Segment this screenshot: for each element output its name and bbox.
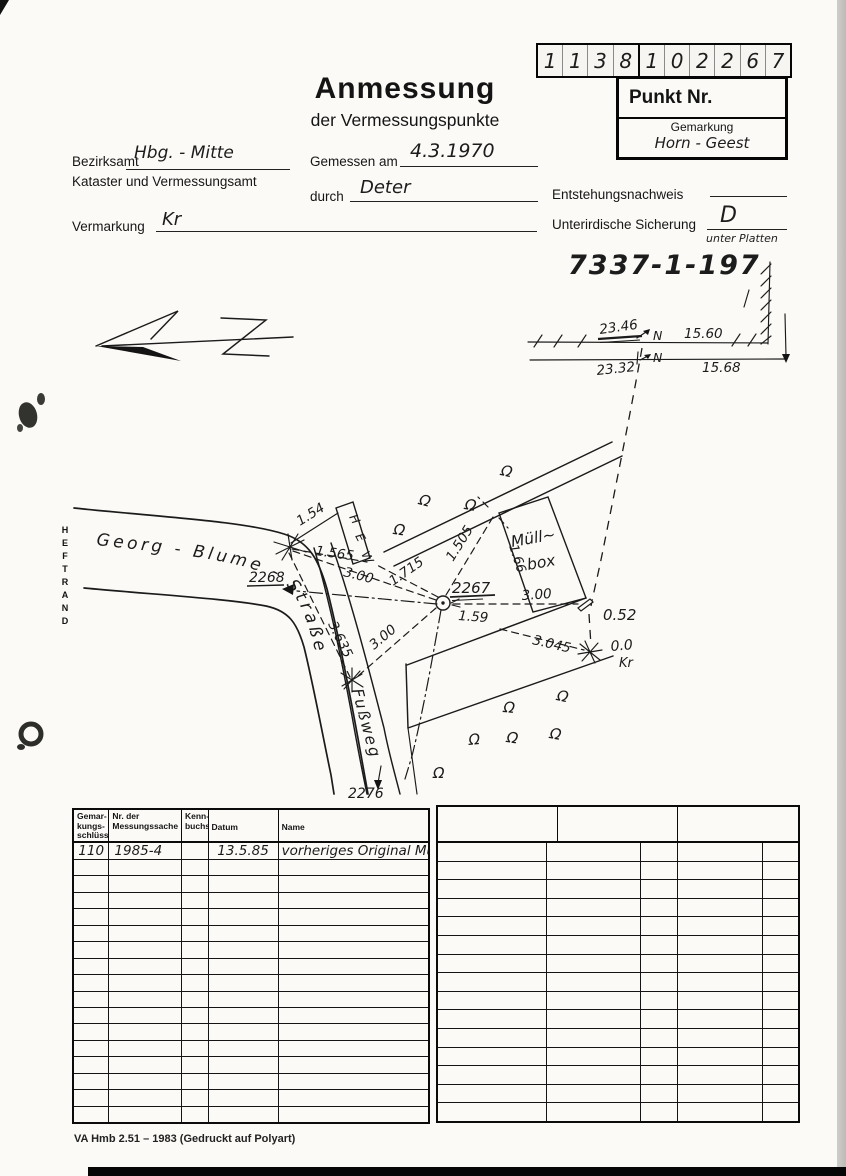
sicherung-note: unter Platten: [706, 232, 778, 245]
table-row: [438, 1085, 798, 1104]
table-cell: [547, 992, 641, 1010]
table-cell: [209, 860, 279, 875]
table-cell: [641, 1029, 678, 1047]
table-cell: [209, 959, 279, 974]
table-cell: [641, 843, 678, 861]
table-row: [74, 909, 428, 925]
measure-159: 1.59: [458, 608, 489, 626]
col-header-name: Name: [279, 810, 428, 841]
gemessen-underline: [400, 166, 538, 167]
table-cell: [182, 843, 209, 859]
table-cell: [438, 1103, 547, 1121]
revision-table-left: Gemar- kungs- schlüssel Nr. der Messungs…: [72, 808, 430, 1124]
table-cell: [182, 1090, 209, 1105]
table-cell: [109, 893, 182, 908]
digit-cell: 8: [614, 45, 640, 76]
left-table-header: Gemar- kungs- schlüssel Nr. der Messungs…: [74, 810, 428, 843]
col-header-gemarkungsschluessel: Gemar- kungs- schlüssel: [74, 810, 109, 841]
table-row: [438, 992, 798, 1011]
table-cell: [209, 992, 279, 1007]
table-cell: [209, 876, 279, 891]
entstehungsnachweis-label: Entstehungsnachweis: [552, 187, 683, 202]
table-cell: [547, 1010, 641, 1028]
bush-icon: Ω: [462, 495, 478, 515]
measure-300-a: 3.00: [342, 564, 375, 587]
table-row: [438, 973, 798, 992]
table-row: [74, 860, 428, 876]
table-cell: [763, 992, 798, 1010]
form-title: Anmessung: [255, 72, 555, 106]
table-cell: [109, 1090, 182, 1105]
table-cell: [279, 942, 428, 957]
dim-2332: 23.32: [596, 359, 636, 379]
table-cell: [763, 1010, 798, 1028]
table-cell: [763, 955, 798, 973]
table-cell: [209, 975, 279, 990]
table-cell: [209, 942, 279, 957]
muellbox-label-2: box: [526, 551, 558, 574]
bush-icon: Ω: [432, 764, 445, 782]
table-cell: [438, 973, 547, 991]
table-cell: [109, 876, 182, 891]
bezirksamt-value: Hbg. - Mitte: [134, 143, 234, 163]
table-cell: [182, 926, 209, 941]
bush-icon: Ω: [554, 686, 570, 706]
table-cell: [438, 862, 547, 880]
table-cell: [641, 992, 678, 1010]
durch-value: Deter: [360, 177, 410, 198]
table-cell: [74, 942, 109, 957]
table-cell: [438, 880, 547, 898]
table-cell: [74, 909, 109, 924]
table-cell: [763, 1103, 798, 1121]
bush-icon: Ω: [502, 698, 517, 717]
table-cell: [74, 959, 109, 974]
table-cell: [279, 926, 428, 941]
table-cell: [74, 876, 109, 891]
table-cell: [182, 860, 209, 875]
table-cell: [438, 899, 547, 917]
table-row: [438, 955, 798, 974]
table-cell: [279, 893, 428, 908]
table-cell: [547, 862, 641, 880]
table-cell: [678, 899, 763, 917]
bush-icon: Ω: [547, 724, 563, 744]
point-number-digit-boxes: 1 1 3 8 1 0 2 2 6 7: [536, 43, 792, 78]
table-cell: [182, 942, 209, 957]
right-table-header: [438, 807, 798, 843]
building-lines: [384, 442, 622, 728]
digit-cell: 2: [715, 45, 740, 76]
table-cell: [547, 1048, 641, 1066]
table-cell: [641, 899, 678, 917]
table-cell: [438, 1029, 547, 1047]
table-cell: [109, 992, 182, 1007]
table-cell: [182, 876, 209, 891]
table-cell: [182, 1041, 209, 1056]
heftrand-label: HEFTRAND: [60, 525, 70, 629]
digit-cell: 1: [563, 45, 588, 76]
entstehungsnachweis-underline: [710, 196, 787, 197]
table-cell: [279, 860, 428, 875]
table-cell: [109, 975, 182, 990]
table-cell: [641, 1048, 678, 1066]
table-cell: [547, 880, 641, 898]
table-cell: [678, 1010, 763, 1028]
col-header-datum: Datum: [209, 810, 279, 841]
survey-sketch: 23.46 N 15.60 N 23.32 15.68: [0, 250, 846, 800]
table-cell: [209, 926, 279, 941]
vermarkung-label: Vermarkung: [72, 219, 145, 234]
table-cell: [182, 1057, 209, 1072]
bush-icon: Ω: [416, 490, 433, 511]
table-row: [74, 876, 428, 892]
table-cell: [209, 893, 279, 908]
digit-cell: 6: [741, 45, 766, 76]
table-cell: [641, 1103, 678, 1121]
table-cell: [763, 843, 798, 861]
table-cell: [182, 1008, 209, 1023]
vermarkung-value: Kr: [162, 209, 181, 230]
table-cell: [763, 880, 798, 898]
table-row: [438, 899, 798, 918]
table-cell: [678, 862, 763, 880]
table-cell: [763, 1048, 798, 1066]
table-cell: [209, 909, 279, 924]
dim-1568: 15.68: [702, 360, 741, 376]
table-cell: [678, 992, 763, 1010]
table-cell: [74, 926, 109, 941]
table-cell: 1985-4: [109, 843, 182, 859]
bezirksamt-label: Bezirksamt: [72, 154, 139, 169]
empty-header-cell: [678, 807, 798, 841]
table-cell: [74, 975, 109, 990]
table-row: [438, 1048, 798, 1067]
table-cell: [182, 959, 209, 974]
table-cell: [678, 917, 763, 935]
table-cell: [438, 1010, 547, 1028]
measure-1505: 1.505: [443, 523, 477, 564]
table-cell: [678, 1085, 763, 1103]
sicherung-value: D: [720, 203, 737, 228]
table-row: [74, 992, 428, 1008]
table-row: [438, 917, 798, 936]
table-cell: [209, 1024, 279, 1039]
table-cell: [279, 959, 428, 974]
survey-point-kr: [578, 641, 602, 663]
table-cell: [109, 1074, 182, 1089]
table-cell: [547, 973, 641, 991]
table-row: [74, 926, 428, 942]
measure-052: 0.52: [603, 606, 636, 624]
table-cell: [547, 843, 641, 861]
table-cell: [109, 1008, 182, 1023]
digit-cell: 7: [766, 45, 790, 76]
table-cell: [74, 1090, 109, 1105]
table-cell: [678, 955, 763, 973]
bezirksamt-underline: [126, 169, 290, 170]
table-row: [438, 1029, 798, 1048]
table-cell: [74, 1107, 109, 1122]
table-cell: [763, 1085, 798, 1103]
sicherung-label: Unterirdische Sicherung: [552, 217, 696, 232]
table-cell: [641, 880, 678, 898]
table-cell: [109, 942, 182, 957]
durch-underline: [350, 201, 538, 202]
table-cell: [182, 909, 209, 924]
scan-corner-artifact: [0, 0, 9, 15]
table-row: [438, 1103, 798, 1121]
table-cell: [279, 1041, 428, 1056]
table-cell: [209, 1090, 279, 1105]
table-cell: [678, 1048, 763, 1066]
gemessen-value: 4.3.1970: [410, 140, 495, 162]
gemessen-label: Gemessen am: [310, 154, 398, 169]
gemarkung-label: Gemarkung: [619, 120, 785, 134]
table-cell: [109, 926, 182, 941]
durch-label: durch: [310, 189, 344, 204]
table-cell: [109, 1024, 182, 1039]
digit-cell: 1: [640, 45, 665, 76]
table-cell: [438, 1066, 547, 1084]
table-row: [74, 1057, 428, 1073]
punkt-nr-label: Punkt Nr.: [619, 79, 785, 117]
table-cell: [74, 1008, 109, 1023]
measure-3635: 3.635: [324, 619, 355, 661]
measure-154: 1.54: [294, 500, 328, 529]
table-cell: [279, 1074, 428, 1089]
table-cell: [641, 955, 678, 973]
table-cell: [438, 1048, 547, 1066]
table-cell: [74, 1041, 109, 1056]
table-cell: [438, 992, 547, 1010]
table-cell: [438, 936, 547, 954]
table-cell: [763, 973, 798, 991]
table-row: [74, 893, 428, 909]
measure-00: 0.0: [610, 637, 634, 655]
table-cell: [438, 955, 547, 973]
measure-300-c: 3.00: [366, 621, 399, 653]
table-cell: [547, 1066, 641, 1084]
table-cell: [74, 860, 109, 875]
table-cell: [678, 936, 763, 954]
table-cell: [109, 1057, 182, 1072]
table-cell: [182, 992, 209, 1007]
table-cell: [438, 843, 547, 861]
table-cell: [182, 1074, 209, 1089]
vermarkung-underline: [156, 231, 537, 232]
table-row: [74, 1008, 428, 1024]
point-label-2267: 2267: [452, 579, 491, 597]
table-cell: [547, 1103, 641, 1121]
table-row: [438, 1066, 798, 1085]
dim-1560: 15.60: [684, 326, 723, 342]
table-row: [74, 975, 428, 991]
table-cell: [209, 1074, 279, 1089]
table-cell: [678, 843, 763, 861]
table-cell: [763, 1029, 798, 1047]
measure-300-b: 3.00: [521, 586, 552, 604]
col-header-messungssache: Nr. der Messungssache: [109, 810, 182, 841]
table-cell: [209, 1008, 279, 1023]
table-cell: [279, 876, 428, 891]
measure-kr: Kr: [619, 656, 635, 671]
table-cell: [763, 1066, 798, 1084]
table-row: [74, 1024, 428, 1040]
col-header-kennbuchst: Kenn- buchst.: [182, 810, 209, 841]
table-cell: [438, 1085, 547, 1103]
bush-icon: Ω: [391, 520, 406, 540]
table-cell: [641, 973, 678, 991]
table-cell: [678, 1029, 763, 1047]
table-cell: [279, 1090, 428, 1105]
table-cell: [763, 862, 798, 880]
table-cell: [547, 917, 641, 935]
right-table-body: [438, 843, 798, 1121]
table-cell: [547, 955, 641, 973]
table-row: [74, 1107, 428, 1122]
form-subtitle: der Vermessungspunkte: [255, 110, 555, 131]
gemarkung-value: Horn - Geest: [619, 134, 785, 152]
table-cell: [279, 1024, 428, 1039]
scanned-survey-form: 1 1 3 8 1 0 2 2 6 7 Punkt Nr. Gemarkung …: [0, 0, 846, 1176]
digit-cell: 3: [588, 45, 613, 76]
survey-point-2267: [436, 596, 460, 610]
bush-icon: Ω: [467, 730, 482, 749]
table-cell: [678, 880, 763, 898]
table-cell: [678, 973, 763, 991]
gemarkung-box: Gemarkung Horn - Geest: [619, 117, 785, 162]
table-cell: [182, 975, 209, 990]
north-symbol: [221, 318, 269, 356]
bush-icon: Ω: [498, 461, 514, 481]
table-cell: [279, 909, 428, 924]
table-cell: [109, 1107, 182, 1122]
boundary-dashed-line: [578, 348, 642, 646]
measure-3045: 3.045: [531, 632, 572, 656]
table-row: [74, 1074, 428, 1090]
table-cell: [279, 1107, 428, 1122]
table-cell: 13.5.85: [209, 843, 279, 859]
table-row: [74, 1041, 428, 1057]
table-cell: [74, 1057, 109, 1072]
table-cell: 110: [74, 843, 109, 859]
table-cell: [678, 1103, 763, 1121]
table-cell: [182, 893, 209, 908]
bush-icon: Ω: [504, 728, 519, 748]
table-cell: [209, 1107, 279, 1122]
table-cell: [641, 917, 678, 935]
table-row: [438, 936, 798, 955]
table-cell: [109, 860, 182, 875]
table-cell: vorheriges Original Mü: [279, 843, 428, 859]
form-imprint: VA Hmb 2.51 – 1983 (Gedruckt auf Polyart…: [74, 1133, 295, 1145]
table-cell: [109, 1041, 182, 1056]
sicherung-underline: [707, 229, 787, 230]
table-cell: [547, 899, 641, 917]
left-table-body: 1101985-413.5.85vorheriges Original Mü: [74, 843, 428, 1122]
table-cell: [641, 862, 678, 880]
table-cell: [279, 975, 428, 990]
table-row: [438, 880, 798, 899]
table-cell: [279, 992, 428, 1007]
table-cell: [438, 917, 547, 935]
table-cell: [279, 1057, 428, 1072]
table-cell: [109, 909, 182, 924]
digit-cell: 0: [665, 45, 690, 76]
table-cell: [763, 917, 798, 935]
table-cell: [678, 1066, 763, 1084]
scan-bottom-bar: [88, 1167, 846, 1176]
table-cell: [279, 1008, 428, 1023]
dim-2346: 23.46: [598, 317, 639, 338]
table-cell: [74, 992, 109, 1007]
table-cell: [641, 1085, 678, 1103]
north-arrow: [96, 311, 293, 361]
digit-cell: 2: [690, 45, 715, 76]
table-cell: [547, 1029, 641, 1047]
table-row: [74, 1090, 428, 1106]
table-cell: [763, 899, 798, 917]
point-label-2268: 2268: [249, 570, 285, 586]
table-cell: [547, 1085, 641, 1103]
table-row: 1101985-413.5.85vorheriges Original Mü: [74, 843, 428, 860]
table-cell: [74, 1074, 109, 1089]
north-letter-upper: N: [653, 328, 663, 343]
kataster-label: Kataster und Vermessungsamt: [72, 174, 257, 189]
table-cell: [74, 893, 109, 908]
table-row: [74, 942, 428, 958]
punkt-nr-box: Punkt Nr. Gemarkung Horn - Geest: [616, 76, 788, 160]
table-cell: [209, 1041, 279, 1056]
empty-header-cell: [558, 807, 678, 841]
point-label-2276: 2276: [348, 786, 384, 800]
table-cell: [182, 1107, 209, 1122]
table-cell: [547, 936, 641, 954]
table-cell: [641, 936, 678, 954]
table-cell: [182, 1024, 209, 1039]
table-row: [74, 959, 428, 975]
empty-header-cell: [438, 807, 558, 841]
table-cell: [74, 1024, 109, 1039]
dimension-block: 23.46 N 15.60 N 23.32 15.68: [528, 262, 790, 379]
north-letter-lower: N: [653, 350, 663, 365]
revision-table-right: [436, 805, 800, 1123]
table-cell: [641, 1066, 678, 1084]
table-cell: [109, 959, 182, 974]
table-cell: [209, 1057, 279, 1072]
table-cell: [641, 1010, 678, 1028]
table-row: [438, 862, 798, 881]
table-cell: [763, 936, 798, 954]
scan-edge-shadow: [837, 0, 846, 1176]
table-row: [438, 843, 798, 862]
table-row: [438, 1010, 798, 1029]
